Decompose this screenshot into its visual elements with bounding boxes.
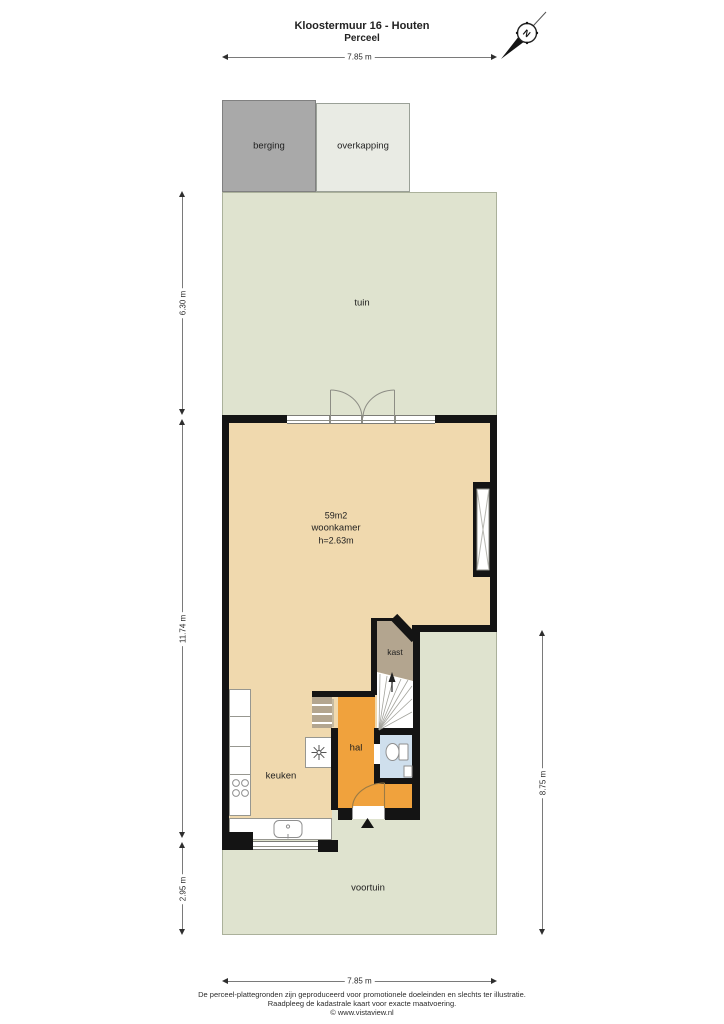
wall-stairs-bottom	[374, 728, 420, 735]
footer-line2: Raadpleeg de kadastrale kaart voor exact…	[0, 999, 724, 1008]
dimension-left-voortuin-label: 2.95 m	[177, 873, 188, 903]
wall-top-right	[435, 415, 497, 423]
page-title: Kloostermuur 16 - Houten Perceel	[0, 20, 724, 44]
wall-top-left	[222, 415, 287, 423]
woonkamer-area-label: 59m2	[311, 509, 360, 522]
woonkamer-label-block: 59m2 woonkamer h=2.63m	[311, 509, 360, 547]
plan-subtitle: Perceel	[0, 33, 724, 44]
dimension-right-side: 8.75 m	[538, 630, 547, 935]
berging-label: berging	[253, 141, 285, 152]
footer-disclaimer: De perceel-plattegronden zijn geproducee…	[0, 990, 724, 1017]
hal-floor	[338, 697, 375, 810]
kast-label: kast	[387, 647, 403, 657]
dimension-left-tuin: 6.30 m	[178, 191, 187, 415]
garden-glazing-band	[287, 415, 435, 424]
dimension-left-house: 11.74 m	[178, 419, 187, 838]
kitchen-island-unit	[305, 737, 333, 768]
wall-step	[412, 625, 497, 632]
hal-label: hal	[350, 743, 363, 754]
dimension-right-side-label: 8.75 m	[537, 767, 548, 797]
woonkamer-label: woonkamer	[311, 522, 360, 535]
kitchen-counter-left	[229, 689, 251, 816]
address-title: Kloostermuur 16 - Houten	[0, 20, 724, 32]
woonkamer-height-label: h=2.63m	[311, 534, 360, 547]
wall-kast-left	[371, 618, 377, 695]
wall-bottom-left	[222, 832, 253, 850]
floorplan-page: Kloostermuur 16 - Houten Perceel N	[0, 0, 724, 1024]
voortuin-label: voortuin	[351, 883, 385, 894]
tuin-label: tuin	[354, 298, 369, 309]
wall-bottom-mid	[318, 840, 338, 852]
side-window-frame	[473, 482, 497, 577]
wall-hal-top	[312, 691, 375, 697]
overkapping-label: overkapping	[337, 141, 389, 152]
wall-left	[222, 415, 229, 850]
dimension-top-label: 7.85 m	[344, 52, 374, 63]
dimension-bottom-label: 7.85 m	[344, 976, 374, 987]
kitchen-window	[253, 841, 318, 850]
toilet-room	[380, 735, 412, 778]
wall-right-lower	[412, 632, 420, 820]
footer-credit: © www.vistaview.nl	[0, 1008, 724, 1017]
dimension-bottom: 7.85 m	[222, 976, 497, 986]
meterkast-cabinet	[312, 697, 332, 728]
wall-front-left	[338, 808, 352, 820]
dimension-left-house-label: 11.74 m	[177, 611, 188, 645]
wall-toilet-bottom	[374, 778, 420, 784]
dimension-top: 7.85 m	[222, 52, 497, 62]
toilet-door-opening	[374, 744, 380, 764]
dimension-left-voortuin: 2.95 m	[178, 842, 187, 935]
footer-line1: De perceel-plattegronden zijn geproducee…	[0, 990, 724, 999]
dimension-left-tuin-label: 6.30 m	[177, 288, 188, 318]
wall-hal-left	[331, 728, 338, 810]
keuken-label: keuken	[266, 771, 297, 782]
wall-front-right	[385, 808, 420, 820]
front-door-opening	[352, 806, 385, 819]
